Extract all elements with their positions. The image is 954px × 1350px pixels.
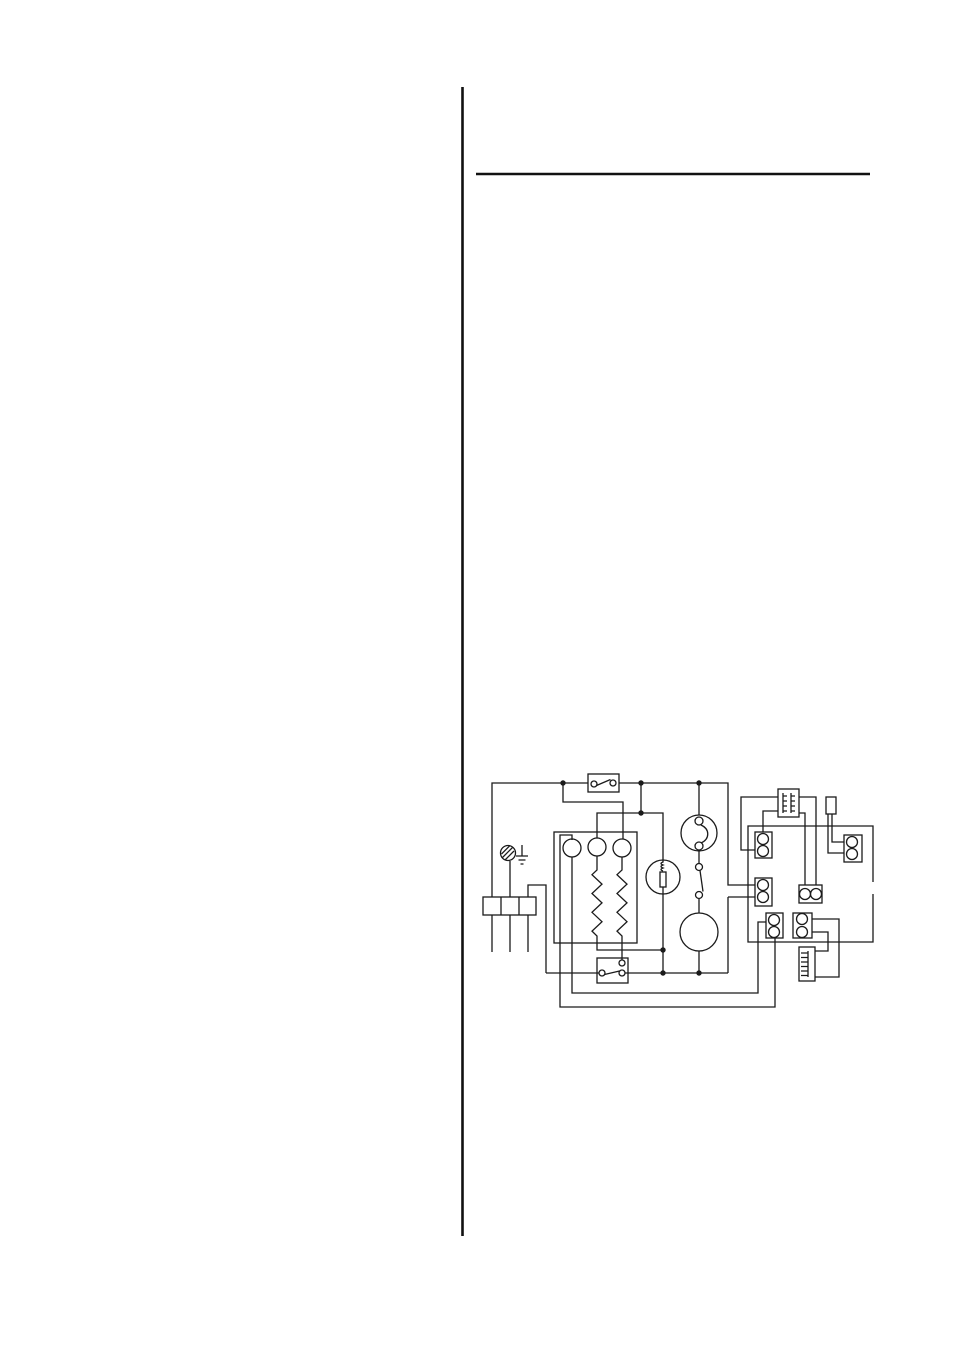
ignition-transformer	[778, 789, 799, 817]
indicator-lamp-3	[613, 839, 631, 857]
fuse-link	[826, 797, 836, 814]
connector-d	[799, 885, 822, 903]
motor	[680, 913, 718, 951]
spark-electrode	[799, 947, 815, 981]
indicator-lamp-1	[563, 839, 581, 857]
neon-indicator	[646, 860, 680, 894]
wire-electrode-feed	[812, 919, 839, 977]
thermostat-contact	[696, 864, 704, 899]
wiring	[492, 783, 873, 1007]
main-switch	[588, 774, 619, 792]
wire-branch-right	[597, 783, 663, 860]
indicator-lamp-2	[588, 838, 606, 856]
wire-terminal-leads	[492, 861, 528, 952]
connector-b	[844, 835, 862, 862]
earth-symbol	[516, 845, 528, 864]
connector-f	[793, 913, 812, 938]
wire-terminal3-link	[528, 885, 546, 973]
connector-e	[766, 913, 783, 938]
heating-element-1	[592, 856, 602, 938]
heating-element-2	[617, 857, 627, 938]
wire-transformer-secondary	[799, 797, 816, 885]
control-unit-box	[554, 832, 637, 943]
thermal-cutout	[597, 958, 628, 983]
manual-page	[0, 0, 954, 1350]
wiring-diagram-canvas	[0, 0, 954, 1350]
mains-terminal-block	[483, 897, 536, 915]
connector-a	[755, 832, 772, 858]
wire-fuse-legs	[828, 814, 844, 853]
wire-element-rail	[597, 938, 663, 960]
connector-c	[755, 878, 772, 906]
earth-screw	[501, 846, 516, 861]
thermostat-sensor	[681, 815, 717, 851]
